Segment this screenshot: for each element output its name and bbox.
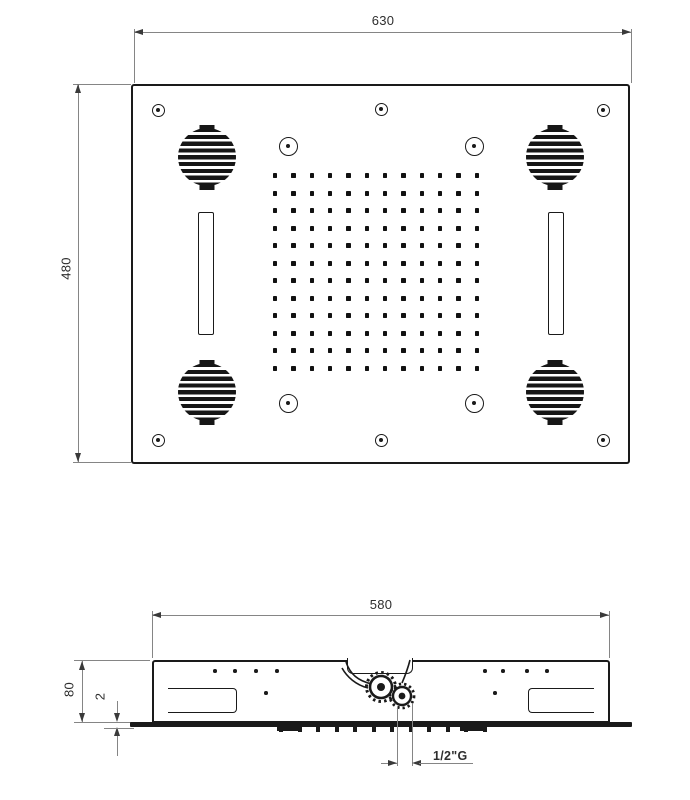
nozzle-dot [456, 191, 461, 196]
nozzle-dot [420, 261, 425, 266]
dim-2-arrow-top [114, 713, 120, 722]
dim-2-ext [104, 728, 134, 729]
nozzle-dot [401, 331, 406, 336]
nozzle-dot [401, 173, 406, 178]
nozzle-dot [328, 243, 333, 248]
technical-drawing-canvas: 630 480 [0, 0, 690, 800]
speaker-grille [526, 128, 584, 186]
thread-ext-right [412, 703, 413, 766]
nozzle-dot [383, 366, 388, 371]
dim-80-ext-bottom [74, 722, 132, 723]
dim-80-label: 80 [62, 673, 77, 707]
nozzle-dot [438, 226, 443, 231]
section-dot [264, 691, 268, 695]
nozzle-dot [365, 243, 370, 248]
nozzle-dot [456, 278, 461, 283]
nozzle-dot [475, 191, 480, 196]
dim-2-stem-bottom [117, 736, 118, 756]
nozzle-ticks [279, 726, 487, 732]
nozzle-dot [438, 173, 443, 178]
nozzle-dot [291, 208, 296, 213]
nozzle-dot [420, 331, 425, 336]
dim-480-arrow-bottom [75, 453, 81, 462]
nozzle-dot [328, 261, 333, 266]
nozzle-dot [365, 208, 370, 213]
dim-480-label: 480 [59, 249, 74, 289]
nozzle-dot [438, 261, 443, 266]
nozzle-dot [346, 348, 351, 353]
speaker-grille-tab [548, 185, 563, 190]
dim-630-arrow-right [622, 29, 631, 35]
dim-630-arrow-left [134, 29, 143, 35]
center-mark [279, 394, 298, 413]
nozzle-dot [475, 261, 480, 266]
nozzle-dot [456, 313, 461, 318]
speaker-grille-tab [200, 420, 215, 425]
nozzle-dot [346, 366, 351, 371]
dim-580-arrow-left [152, 612, 161, 618]
nozzle-dot [328, 348, 333, 353]
dim-580-line [152, 615, 609, 616]
nozzle-dot [420, 173, 425, 178]
nozzle-dot [420, 243, 425, 248]
dim-580-ext-right [609, 611, 610, 658]
nozzle-dot [456, 331, 461, 336]
nozzle-dot [420, 208, 425, 213]
nozzle-dot [401, 208, 406, 213]
nozzle-dot [273, 173, 278, 178]
dim-630-line [134, 32, 631, 33]
nozzle-dot [365, 278, 370, 283]
nozzle-dot [328, 226, 333, 231]
section-dot [545, 669, 549, 673]
nozzle-dot [346, 296, 351, 301]
nozzle-dot [291, 331, 296, 336]
nozzle-dot [420, 348, 425, 353]
nozzle-dot [273, 313, 278, 318]
nozzle-dot [346, 331, 351, 336]
led-slot-left [198, 212, 214, 335]
speaker-box-section [168, 688, 237, 713]
nozzle-dot [456, 243, 461, 248]
center-mark [465, 137, 484, 156]
screw-hole [152, 104, 165, 117]
nozzle-dot [420, 366, 425, 371]
nozzle-dot [475, 331, 480, 336]
section-dot [493, 691, 497, 695]
speaker-grille-tab [548, 420, 563, 425]
nozzle-dot [383, 243, 388, 248]
screw-hole [375, 434, 388, 447]
nozzle-dot [291, 173, 296, 178]
nozzle-dot [328, 208, 333, 213]
nozzle-dot [475, 313, 480, 318]
nozzle-dot [273, 296, 278, 301]
nozzle-dot [401, 191, 406, 196]
dim-2-label: 2 [93, 685, 108, 709]
nozzle-dot [310, 243, 315, 248]
section-dot [501, 669, 505, 673]
nozzle-dot [273, 226, 278, 231]
nozzle-dot [291, 366, 296, 371]
nozzle-dot [310, 348, 315, 353]
nozzle-dot [383, 173, 388, 178]
dim-480-line [78, 84, 79, 462]
speaker-grille-tab [200, 185, 215, 190]
dim-630-ext-left [134, 29, 135, 83]
nozzle-dot [328, 278, 333, 283]
nozzle-dot [383, 208, 388, 213]
nozzle-dot [346, 226, 351, 231]
speaker-grille-stripes [178, 363, 236, 421]
section-dot [213, 669, 217, 673]
screw-hole [597, 434, 610, 447]
nozzle-dot [291, 243, 296, 248]
nozzle-dot [456, 366, 461, 371]
nozzle-dot [273, 278, 278, 283]
nozzle-dot [383, 191, 388, 196]
nozzle-dot [456, 173, 461, 178]
nozzle-dot [328, 296, 333, 301]
nozzle-dot [456, 296, 461, 301]
speaker-grille-stripes [526, 128, 584, 186]
nozzle-strip-section [460, 726, 485, 731]
nozzle-dot [475, 243, 480, 248]
nozzle-dot [310, 208, 315, 213]
nozzle-dot [438, 208, 443, 213]
nozzle-grid [266, 167, 486, 377]
thread-ext-left [397, 707, 398, 766]
screw-hole [375, 103, 388, 116]
nozzle-dot [273, 208, 278, 213]
nozzle-dot [291, 348, 296, 353]
nozzle-dot [475, 366, 480, 371]
dim-80-ext-top [74, 660, 150, 661]
nozzle-dot [273, 366, 278, 371]
nozzle-tick [390, 726, 394, 732]
nozzle-dot [365, 366, 370, 371]
screw-hole [597, 104, 610, 117]
nozzle-dot [291, 313, 296, 318]
speaker-grille-tab [548, 125, 563, 130]
dim-630-ext-right [631, 29, 632, 83]
nozzle-dot [401, 313, 406, 318]
nozzle-dot [456, 226, 461, 231]
nozzle-dot [310, 313, 315, 318]
nozzle-dot [438, 278, 443, 283]
nozzle-dot [291, 191, 296, 196]
nozzle-dot [475, 208, 480, 213]
nozzle-dot [346, 313, 351, 318]
nozzle-dot [346, 173, 351, 178]
nozzle-dot [291, 261, 296, 266]
nozzle-dot [273, 261, 278, 266]
nozzle-dot [365, 296, 370, 301]
nozzle-dot [438, 191, 443, 196]
nozzle-dot [346, 261, 351, 266]
nozzle-dot [456, 208, 461, 213]
dim-80-arrow-bottom [79, 713, 85, 722]
nozzle-dot [328, 331, 333, 336]
nozzle-dot [383, 296, 388, 301]
nozzle-dot [383, 261, 388, 266]
nozzle-dot [401, 226, 406, 231]
nozzle-dot [365, 191, 370, 196]
nozzle-dot [291, 226, 296, 231]
nozzle-dot [475, 173, 480, 178]
nozzle-dot [475, 296, 480, 301]
nozzle-dot [346, 243, 351, 248]
nozzle-dot [401, 278, 406, 283]
nozzle-dot [401, 261, 406, 266]
nozzle-dot [365, 226, 370, 231]
nozzle-dot [310, 226, 315, 231]
dim-480-arrow-top [75, 84, 81, 93]
nozzle-dot [310, 173, 315, 178]
nozzle-dot [328, 366, 333, 371]
screw-hole [152, 434, 165, 447]
speaker-grille [178, 363, 236, 421]
nozzle-dot [383, 313, 388, 318]
nozzle-dot [420, 313, 425, 318]
dim-480-ext-top [73, 84, 131, 85]
center-mark [465, 394, 484, 413]
dim-580-arrow-right [600, 612, 609, 618]
nozzle-dot [401, 296, 406, 301]
nozzle-dot [365, 313, 370, 318]
nozzle-dot [310, 261, 315, 266]
nozzle-dot [420, 226, 425, 231]
speaker-grille-tab [200, 125, 215, 130]
nozzle-dot [438, 243, 443, 248]
nozzle-dot [273, 331, 278, 336]
nozzle-dot [401, 243, 406, 248]
led-slot-right [548, 212, 564, 335]
nozzle-dot [328, 173, 333, 178]
nozzle-dot [438, 296, 443, 301]
nozzle-dot [365, 173, 370, 178]
speaker-grille [526, 363, 584, 421]
speaker-grille-tab [548, 360, 563, 365]
nozzle-dot [346, 208, 351, 213]
section-dot [254, 669, 258, 673]
nozzle-tick [353, 726, 357, 732]
nozzle-dot [420, 296, 425, 301]
section-dot [233, 669, 237, 673]
thread-dim-line-right [419, 763, 473, 764]
nozzle-dot [310, 191, 315, 196]
nozzle-dot [365, 348, 370, 353]
nozzle-dot [310, 331, 315, 336]
nozzle-dot [291, 296, 296, 301]
nozzle-dot [475, 278, 480, 283]
nozzle-dot [438, 348, 443, 353]
nozzle-tick [372, 726, 376, 732]
nozzle-dot [310, 278, 315, 283]
nozzle-dot [346, 191, 351, 196]
nozzle-dot [346, 278, 351, 283]
section-dot [483, 669, 487, 673]
nozzle-dot [475, 348, 480, 353]
dim-580-ext-left [152, 611, 153, 658]
nozzle-dot [328, 313, 333, 318]
thread-label: 1/2"G [433, 749, 468, 763]
nozzle-dot [365, 261, 370, 266]
nozzle-strip-section [277, 726, 302, 731]
nozzle-dot [310, 296, 315, 301]
nozzle-tick [335, 726, 339, 732]
nozzle-dot [383, 226, 388, 231]
speaker-grille-stripes [178, 128, 236, 186]
nozzle-dot [273, 348, 278, 353]
nozzle-dot [383, 278, 388, 283]
nozzle-dot [420, 191, 425, 196]
speaker-box-section [528, 688, 594, 713]
nozzle-dot [438, 331, 443, 336]
nozzle-tick [427, 726, 431, 732]
nozzle-dot [438, 313, 443, 318]
dim-630-label: 630 [363, 13, 403, 28]
nozzle-tick [316, 726, 320, 732]
nozzle-dot [365, 331, 370, 336]
nozzle-dot [456, 348, 461, 353]
speaker-grille-stripes [526, 363, 584, 421]
center-mark [279, 137, 298, 156]
nozzle-dot [383, 348, 388, 353]
nozzle-dot [310, 366, 315, 371]
thread-arrow-left [388, 760, 397, 766]
speaker-grille-tab [200, 360, 215, 365]
nozzle-dot [438, 366, 443, 371]
nozzle-dot [456, 261, 461, 266]
nozzle-dot [475, 226, 480, 231]
valve-assembly [330, 656, 420, 714]
nozzle-dot [383, 331, 388, 336]
nozzle-dot [291, 278, 296, 283]
dim-480-ext-bottom [73, 462, 131, 463]
nozzle-dot [273, 191, 278, 196]
nozzle-dot [401, 366, 406, 371]
dim-80-arrow-top [79, 661, 85, 670]
section-dot [525, 669, 529, 673]
dim-580-label: 580 [361, 597, 401, 612]
nozzle-dot [401, 348, 406, 353]
nozzle-dot [328, 191, 333, 196]
nozzle-tick [446, 726, 450, 732]
speaker-grille [178, 128, 236, 186]
section-dot [275, 669, 279, 673]
nozzle-dot [420, 278, 425, 283]
nozzle-dot [273, 243, 278, 248]
